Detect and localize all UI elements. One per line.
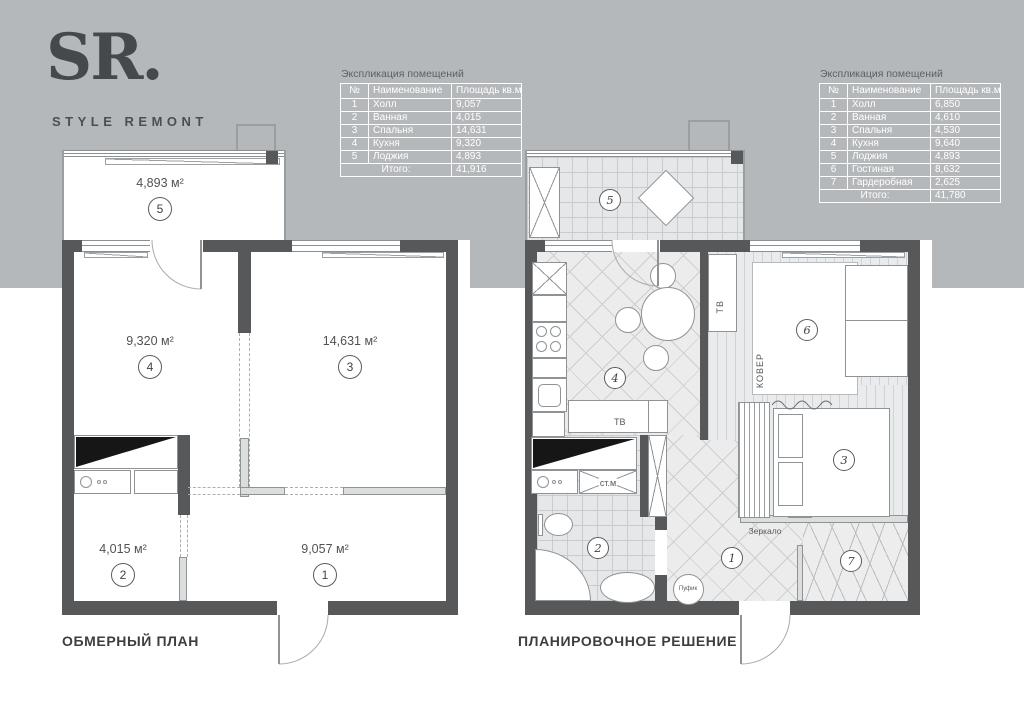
table-cell: Гардеробная: [848, 177, 931, 190]
table-cell: 9,640: [931, 138, 1001, 151]
table-header-row: № Наименование Площадь кв.м: [820, 84, 1001, 99]
tall-cabinet: [648, 435, 667, 517]
dashed-wall: [188, 487, 240, 495]
table-cell: Холл: [369, 99, 452, 112]
table-cell: 1: [341, 99, 369, 112]
table-row: 5Лоджия4,893: [341, 151, 522, 164]
table-header: Наименование: [848, 84, 931, 99]
counter: [532, 412, 565, 437]
wall: [640, 435, 648, 517]
table-cell: Кухня: [369, 138, 452, 151]
partition-wall: [240, 487, 285, 495]
total-value: 41,916: [452, 164, 522, 177]
table-cell: Лоджия: [369, 151, 452, 164]
dining-table: [641, 287, 695, 341]
table-cell: Спальня: [848, 125, 931, 138]
partition-wall: [797, 545, 803, 601]
vent-box: [688, 120, 730, 152]
room-number: 5: [599, 189, 621, 211]
burner-icon: [536, 326, 547, 337]
window: [750, 240, 860, 252]
wall: [62, 601, 277, 615]
table-header: Площадь кв.м: [931, 84, 1001, 99]
wall: [266, 151, 278, 164]
cabinet: [532, 262, 567, 295]
window-sill: [782, 252, 905, 258]
table-header-row: № Наименование Площадь кв.м: [341, 84, 522, 99]
door-arc: [741, 615, 790, 664]
wall: [178, 435, 190, 515]
table-cell: 4,015: [452, 112, 522, 125]
table-row: 1Холл9,057: [341, 99, 522, 112]
table-cell: 5: [820, 151, 848, 164]
room-number: 6: [796, 319, 818, 341]
table-row: 2Ванная4,015: [341, 112, 522, 125]
room-number: 3: [338, 355, 362, 379]
table-cell: 3: [820, 125, 848, 138]
table-header: Наименование: [369, 84, 452, 99]
room-area: 4,893 м²: [136, 176, 184, 190]
counter: [134, 470, 178, 494]
vent-shaft: [74, 435, 178, 469]
room-number: 7: [840, 550, 862, 572]
chair: [615, 307, 641, 333]
room-number: 2: [587, 537, 609, 559]
tap-icon: [97, 480, 101, 484]
table-cell: 14,631: [452, 125, 522, 138]
dashed-wall: [239, 333, 250, 487]
table-cell: 2: [820, 112, 848, 125]
dresser: [738, 402, 770, 518]
wall: [860, 240, 920, 252]
vent-shaft-triangle: [533, 439, 635, 468]
apartment-floor: [62, 240, 470, 615]
radiator: [84, 252, 148, 258]
burner-icon: [550, 341, 561, 352]
table-cell: 1: [820, 99, 848, 112]
table-row: 4Кухня9,320: [341, 138, 522, 151]
room-number: 5: [148, 197, 172, 221]
table-cell: 4,610: [931, 112, 1001, 125]
burner-icon: [536, 341, 547, 352]
wall: [655, 575, 667, 601]
table-cell: Ванная: [369, 112, 452, 125]
table: № Наименование Площадь кв.м 1Холл6,8502В…: [819, 83, 1001, 203]
table-cell: Холл: [848, 99, 931, 112]
wall: [700, 252, 708, 440]
table-cell: 4,893: [452, 151, 522, 164]
wall: [400, 240, 458, 252]
window-sill: [322, 252, 444, 258]
tv-label: ТВ: [614, 417, 626, 427]
page: SR. STYLE REMONT Экспликация помещений №…: [0, 0, 1024, 724]
cabinet: [529, 167, 560, 238]
total-label: Итого:: [820, 190, 931, 203]
tap-icon: [558, 480, 562, 484]
room-area: 9,320 м²: [126, 334, 174, 348]
room-number: 4: [138, 355, 162, 379]
vent-box: [236, 124, 276, 152]
table-row: 6Гостиная8,632: [820, 164, 1001, 177]
table-total-row: Итого: 41,780: [820, 190, 1001, 203]
chair: [643, 345, 669, 371]
toilet: [544, 513, 573, 536]
table-cell: Гостиная: [848, 164, 931, 177]
counter: [532, 295, 567, 322]
room-number: 3: [833, 449, 855, 471]
sink-icon: [80, 476, 92, 488]
table-cell: 4: [820, 138, 848, 151]
window: [82, 240, 150, 252]
table-cell: Лоджия: [848, 151, 931, 164]
table-cell: 4,530: [931, 125, 1001, 138]
wall: [525, 240, 545, 252]
vent-shaft: [531, 437, 637, 470]
table-row: 7Гардеробная2,625: [820, 177, 1001, 190]
table-header: №: [820, 84, 848, 99]
room-area: 9,057 м²: [301, 542, 349, 556]
bathtub: [600, 572, 655, 603]
tap-icon: [552, 480, 556, 484]
table-cell: 8,632: [931, 164, 1001, 177]
window: [64, 150, 284, 157]
wall: [62, 240, 82, 252]
table-row: 4Кухня9,640: [820, 138, 1001, 151]
room-number: 4: [604, 367, 626, 389]
table-row: 3Спальня4,530: [820, 125, 1001, 138]
partition-wall: [343, 487, 446, 495]
room-area: 14,631 м²: [323, 334, 377, 348]
dashed-wall: [285, 487, 343, 495]
radiator: [105, 158, 280, 165]
explication-table-left: Экспликация помещений № Наименование Пло…: [340, 68, 521, 177]
table-row: 3Спальня14,631: [341, 125, 522, 138]
wall: [790, 601, 920, 615]
wall: [238, 240, 251, 333]
table-row: 2Ванная4,610: [820, 112, 1001, 125]
wall: [62, 240, 74, 615]
door-arc: [279, 615, 328, 664]
wall: [446, 240, 458, 615]
table-cell: Кухня: [848, 138, 931, 151]
burner-icon: [550, 326, 561, 337]
plan-title-left: ОБМЕРНЫЙ ПЛАН: [62, 633, 199, 649]
table-cell: 4,893: [931, 151, 1001, 164]
room-number: 1: [721, 547, 743, 569]
explication-table-right: Экспликация помещений № Наименование Пло…: [819, 68, 1000, 203]
vent-shaft-triangle: [76, 437, 176, 467]
wall: [660, 240, 750, 252]
counter: [532, 358, 567, 378]
table-cell: 6: [820, 164, 848, 177]
table-cell: 3: [341, 125, 369, 138]
table-cell: 7: [820, 177, 848, 190]
logo-subtitle: STYLE REMONT: [52, 114, 208, 129]
logo-text: SR.: [46, 26, 162, 90]
table-title: Экспликация помещений: [341, 68, 521, 80]
window: [527, 150, 743, 157]
table-cell: 2: [341, 112, 369, 125]
sink-icon: [537, 476, 549, 488]
table-cell: 2,625: [931, 177, 1001, 190]
plan-title-right: ПЛАНИРОВОЧНОЕ РЕШЕНИЕ: [518, 633, 737, 649]
wall: [908, 240, 920, 615]
mirror-label: Зеркало: [748, 526, 781, 536]
table-cell: 5: [341, 151, 369, 164]
tv-unit: [708, 254, 737, 332]
wall: [731, 151, 743, 164]
table-cell: Ванная: [848, 112, 931, 125]
table-total-row: Итого: 41,916: [341, 164, 522, 177]
pouf-label: Пуфик: [679, 586, 697, 592]
carpet-label: КОВЕР: [755, 353, 765, 388]
table-cell: 9,320: [452, 138, 522, 151]
table-cell: 6,850: [931, 99, 1001, 112]
tap-icon: [103, 480, 107, 484]
table-cell: 9,057: [452, 99, 522, 112]
dashed-door: [180, 515, 188, 557]
table-header: №: [341, 84, 369, 99]
wall: [525, 601, 739, 615]
divider: [648, 400, 649, 433]
washer-label: ст.м: [599, 478, 617, 488]
sofa: [845, 265, 908, 377]
chair: [650, 263, 676, 289]
pillow: [778, 414, 803, 458]
pillow: [778, 462, 803, 506]
sofa-seam: [846, 320, 907, 321]
table: № Наименование Площадь кв.м 1Холл9,0572В…: [340, 83, 522, 177]
total-value: 41,780: [931, 190, 1001, 203]
partition-wall: [179, 557, 187, 601]
table-cell: Спальня: [369, 125, 452, 138]
table-cell: 4: [341, 138, 369, 151]
room-area: 4,015 м²: [99, 542, 147, 556]
sink-basin: [538, 384, 561, 407]
window: [292, 240, 400, 252]
room-number: 1: [313, 563, 337, 587]
window: [545, 240, 612, 252]
wall: [328, 601, 458, 615]
table-title: Экспликация помещений: [820, 68, 1000, 80]
room-number: 2: [111, 563, 135, 587]
tv-label: ТВ: [715, 300, 725, 314]
table-header: Площадь кв.м: [452, 84, 522, 99]
toilet-tank: [538, 514, 543, 536]
total-label: Итого:: [341, 164, 452, 177]
table-row: 1Холл6,850: [820, 99, 1001, 112]
table-row: 5Лоджия4,893: [820, 151, 1001, 164]
